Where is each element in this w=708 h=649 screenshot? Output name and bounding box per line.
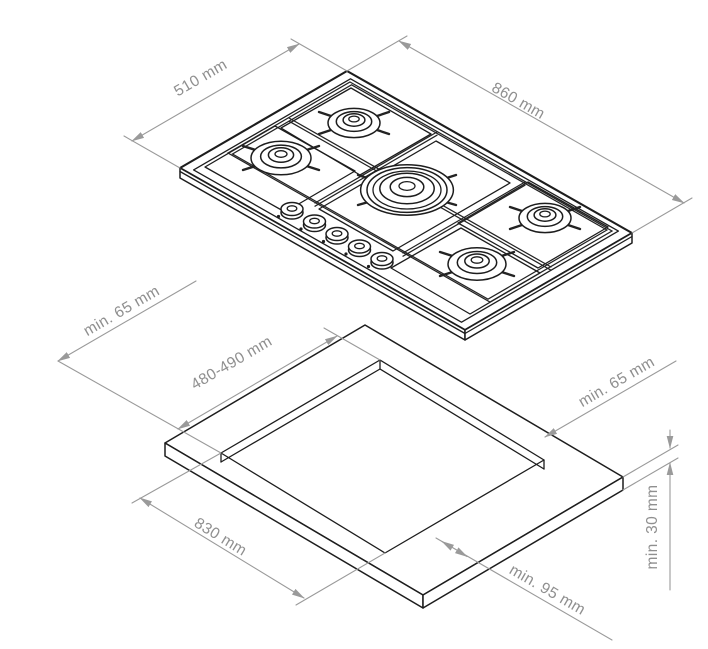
- burner-front-left: [251, 141, 311, 175]
- installation-diagram: 510 mm 860 mm min. 65 mm: [0, 0, 708, 649]
- burner-center-wok: [361, 165, 454, 215]
- dimension-label-cutout-width: 830 mm: [191, 515, 250, 560]
- dimension-label-clearance-right: min. 65 mm: [576, 353, 658, 410]
- dimension-label-hob-width: 860 mm: [489, 79, 548, 123]
- dimension-label-cutout-depth: 480-490 mm: [188, 333, 275, 394]
- dimension-label-clearance-left: min. 65 mm: [81, 282, 163, 339]
- dimension-label-clearance-front: min. 95 mm: [506, 561, 588, 618]
- hob-drawing: 510 mm 860 mm: [124, 36, 692, 340]
- burner-back-right: [519, 203, 571, 232]
- burner-back-left: [328, 108, 380, 137]
- worktop-cutout-drawing: min. 65 mm 480-490 mm min. 65 mm 830 mm …: [58, 281, 678, 640]
- dimension-clearance-right-65: min. 65 mm: [545, 353, 676, 437]
- dimension-label-hob-depth: 510 mm: [171, 56, 230, 100]
- dimension-clearance-front-95: min. 95 mm: [436, 538, 612, 640]
- dimension-label-worktop-thickness: min. 30 mm: [644, 485, 661, 570]
- diagram-canvas: 510 mm 860 mm min. 65 mm: [0, 0, 708, 649]
- burner-front-right: [448, 248, 506, 280]
- dimension-worktop-thickness-30: min. 30 mm: [623, 430, 678, 590]
